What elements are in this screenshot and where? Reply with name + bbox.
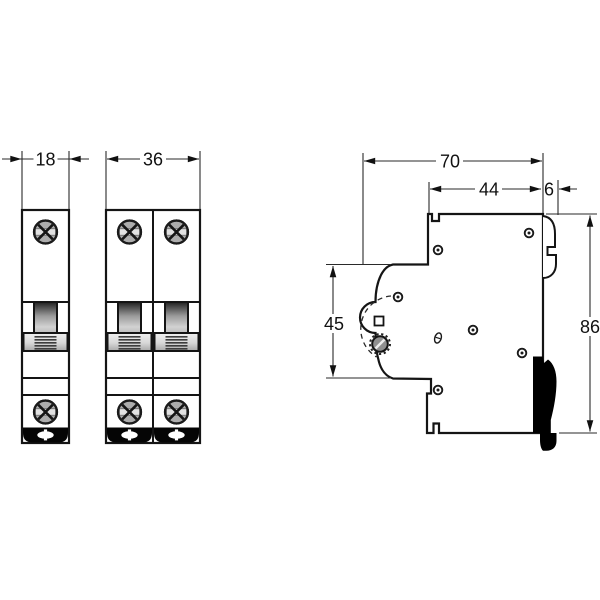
front-view-single-pole (22, 210, 69, 443)
rivet-3 (394, 293, 403, 302)
dimension-44: 44 (429, 180, 541, 214)
dimension-6: 6 (544, 180, 577, 216)
dimension-86-label: 86 (580, 317, 600, 337)
side-view (360, 214, 557, 451)
rivet-6 (434, 386, 443, 395)
rivet-4 (469, 326, 478, 335)
breaker-dimensional-drawing: 18 36 (0, 0, 600, 600)
dimension-44-label: 44 (479, 180, 499, 200)
rivet-1 (434, 246, 443, 255)
din-rail-clip (533, 357, 557, 451)
dimension-18: 18 (2, 149, 89, 209)
rivet-5 (518, 349, 527, 358)
dimension-18-label: 18 (35, 150, 55, 170)
toggle-pivot (375, 317, 384, 326)
front-view-double-pole (106, 210, 200, 443)
dimension-36-label: 36 (143, 150, 163, 170)
dimension-6-label: 6 (544, 180, 554, 200)
side-body-profile (360, 214, 543, 433)
dimension-36: 36 (106, 149, 200, 209)
dimension-70-label: 70 (440, 152, 460, 172)
dimension-45-label: 45 (324, 314, 344, 334)
rivet-2 (525, 229, 534, 238)
drawing-canvas: 18 36 (0, 0, 600, 600)
din-claw (543, 216, 556, 278)
